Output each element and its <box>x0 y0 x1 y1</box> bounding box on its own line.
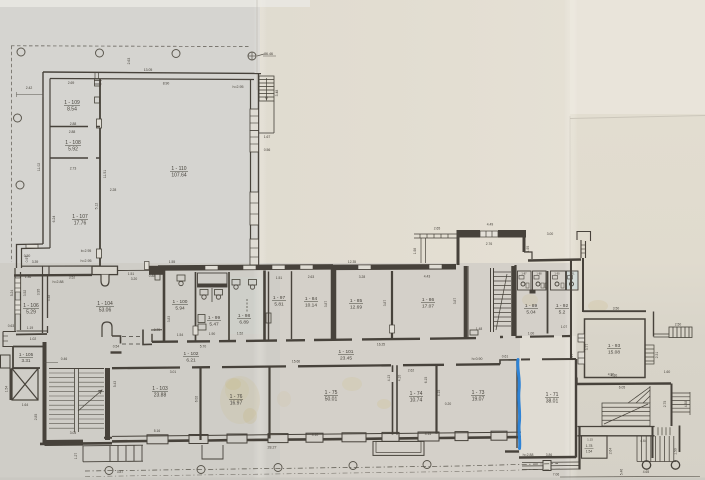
svg-text:6.89: 6.89 <box>239 320 249 326</box>
svg-text:17.76: 17.76 <box>74 221 87 227</box>
svg-text:1-88: 1-88 <box>536 272 542 276</box>
svg-text:3.95: 3.95 <box>37 289 41 296</box>
svg-text:5.47: 5.47 <box>209 322 219 328</box>
svg-text:1.90: 1.90 <box>209 332 216 336</box>
svg-text:5.43: 5.43 <box>113 381 117 388</box>
svg-text:1 - 105: 1 - 105 <box>19 352 34 357</box>
svg-text:1.48: 1.48 <box>476 327 483 331</box>
svg-text:1.67: 1.67 <box>264 135 271 139</box>
svg-text:8.90: 8.90 <box>163 82 170 86</box>
svg-text:2.97: 2.97 <box>570 354 574 361</box>
svg-text:16.25: 16.25 <box>377 343 385 347</box>
svg-text:0.97: 0.97 <box>25 256 29 263</box>
svg-text:10.74: 10.74 <box>410 398 423 404</box>
svg-text:1.19: 1.19 <box>27 326 34 330</box>
svg-text:1.54: 1.54 <box>586 450 593 454</box>
svg-text:1.07: 1.07 <box>561 325 568 329</box>
svg-text:1 - 108: 1 - 108 <box>65 140 81 146</box>
svg-text:13.05: 13.05 <box>144 68 153 72</box>
svg-text:1 - 110: 1 - 110 <box>171 166 186 172</box>
svg-text:28.27: 28.27 <box>268 446 277 450</box>
svg-text:12.35: 12.35 <box>348 260 356 264</box>
svg-text:3.00: 3.00 <box>547 232 554 236</box>
svg-text:0.46: 0.46 <box>61 357 68 361</box>
svg-text:5.46: 5.46 <box>620 469 624 476</box>
svg-text:1 - 101: 1 - 101 <box>339 349 354 355</box>
svg-text:1 - 103: 1 - 103 <box>152 386 168 392</box>
svg-text:1.27: 1.27 <box>74 453 78 460</box>
svg-text:2.76: 2.76 <box>486 242 493 246</box>
svg-text:1.15: 1.15 <box>587 438 593 442</box>
svg-text:4.30: 4.30 <box>611 374 618 378</box>
svg-text:3.77: 3.77 <box>585 344 589 351</box>
svg-text:1.60: 1.60 <box>664 370 671 374</box>
svg-text:5.92: 5.92 <box>68 147 78 153</box>
svg-text:3.52: 3.52 <box>23 290 27 297</box>
svg-text:3.31: 3.31 <box>22 358 31 363</box>
svg-text:2.73: 2.73 <box>70 167 77 171</box>
svg-text:7.06: 7.06 <box>553 473 560 477</box>
svg-text:3.87: 3.87 <box>324 301 328 308</box>
svg-text:4.13: 4.13 <box>387 375 391 382</box>
svg-text:3.52: 3.52 <box>69 276 76 280</box>
svg-text:17.07: 17.07 <box>422 304 434 310</box>
svg-text:1 - 73: 1 - 73 <box>472 390 485 396</box>
svg-text:86.46: 86.46 <box>264 52 273 56</box>
svg-text:3.87: 3.87 <box>117 470 124 474</box>
svg-text:4.10: 4.10 <box>312 433 319 437</box>
svg-text:1.55: 1.55 <box>169 260 176 264</box>
svg-text:1.52: 1.52 <box>237 332 244 336</box>
svg-text:2.65: 2.65 <box>434 227 441 231</box>
svg-text:0.54: 0.54 <box>113 345 120 349</box>
svg-text:3.48: 3.48 <box>275 90 279 97</box>
svg-text:0.70: 0.70 <box>154 328 161 332</box>
svg-text:23.45: 23.45 <box>340 356 352 362</box>
svg-text:0.56: 0.56 <box>264 148 271 152</box>
svg-text:4.43: 4.43 <box>424 275 431 279</box>
svg-text:1.51: 1.51 <box>276 276 283 280</box>
svg-text:1 - 98: 1 - 98 <box>238 313 251 319</box>
svg-text:1.64: 1.64 <box>22 403 29 407</box>
svg-text:2.62: 2.62 <box>408 369 415 373</box>
svg-text:10.14: 10.14 <box>305 303 317 309</box>
svg-text:1 - 74: 1 - 74 <box>410 391 423 397</box>
svg-text:0.88: 0.88 <box>149 274 156 278</box>
svg-text:1 - 71: 1 - 71 <box>546 392 559 398</box>
svg-text:5.16: 5.16 <box>154 429 161 433</box>
svg-text:1.98: 1.98 <box>413 248 417 255</box>
svg-text:5.29: 5.29 <box>26 310 36 316</box>
svg-text:1.51: 1.51 <box>128 272 135 276</box>
svg-text:5.2: 5.2 <box>559 310 566 316</box>
svg-text:38.01: 38.01 <box>546 399 559 405</box>
svg-text:2.50: 2.50 <box>675 323 682 327</box>
svg-text:b=2.95: b=2.95 <box>81 249 92 253</box>
svg-text:2.64: 2.64 <box>609 448 613 455</box>
svg-text:1.95: 1.95 <box>526 246 530 253</box>
svg-text:2.42: 2.42 <box>26 86 33 90</box>
svg-text:50.01: 50.01 <box>325 397 338 403</box>
svg-text:1 - 86: 1 - 86 <box>422 297 435 303</box>
svg-text:2.88: 2.88 <box>70 122 77 126</box>
svg-text:6.15: 6.15 <box>424 377 428 384</box>
svg-text:15.08: 15.08 <box>608 350 620 356</box>
svg-text:1.02: 1.02 <box>30 337 37 341</box>
svg-text:6.05: 6.05 <box>619 386 626 390</box>
svg-text:12.69: 12.69 <box>350 305 362 311</box>
svg-text:2.31: 2.31 <box>655 352 659 359</box>
svg-text:1-78: 1-78 <box>586 444 593 448</box>
svg-text:3.87: 3.87 <box>383 300 387 307</box>
svg-text:1 - 75: 1 - 75 <box>325 390 338 396</box>
svg-text:5.70: 5.70 <box>200 345 207 349</box>
svg-text:4.15: 4.15 <box>437 390 441 397</box>
svg-text:1 - 99: 1 - 99 <box>208 315 221 321</box>
svg-text:4.10: 4.10 <box>398 375 402 382</box>
svg-text:h=2.95: h=2.95 <box>80 259 91 263</box>
svg-text:3.86: 3.86 <box>546 453 553 457</box>
svg-text:3.05: 3.05 <box>70 431 77 435</box>
svg-text:6.24: 6.24 <box>52 216 56 223</box>
svg-text:1-87: 1-87 <box>521 272 527 276</box>
svg-text:4.15: 4.15 <box>425 432 432 436</box>
svg-text:2.85: 2.85 <box>34 414 38 421</box>
svg-text:4.65: 4.65 <box>643 470 650 474</box>
svg-text:4.88: 4.88 <box>684 401 688 408</box>
svg-text:6.02: 6.02 <box>195 396 199 403</box>
svg-text:1 - 106: 1 - 106 <box>23 303 39 309</box>
svg-text:5.94: 5.94 <box>175 306 185 312</box>
svg-text:1 - 85: 1 - 85 <box>350 298 363 304</box>
svg-text:1.36: 1.36 <box>25 275 32 279</box>
svg-text:3.01: 3.01 <box>170 370 177 374</box>
svg-text:1.54: 1.54 <box>177 333 184 337</box>
svg-text:5.04: 5.04 <box>526 310 536 316</box>
svg-text:1 - 102: 1 - 102 <box>184 351 199 357</box>
svg-text:3.39: 3.39 <box>32 260 39 264</box>
svg-text:1 - 107: 1 - 107 <box>72 214 88 220</box>
svg-text:107.64: 107.64 <box>171 173 187 179</box>
svg-text:19.07: 19.07 <box>472 397 485 403</box>
svg-text:0.20: 0.20 <box>445 402 452 406</box>
svg-text:3.48: 3.48 <box>47 295 51 302</box>
svg-text:3.83: 3.83 <box>167 316 171 323</box>
svg-text:5.24: 5.24 <box>10 290 14 297</box>
svg-text:h=0.90: h=0.90 <box>472 357 483 361</box>
svg-text:1 - 84: 1 - 84 <box>305 296 318 302</box>
svg-text:1 - 100: 1 - 100 <box>173 299 188 305</box>
svg-text:6.21: 6.21 <box>186 358 196 364</box>
svg-text:5.12: 5.12 <box>95 203 99 210</box>
svg-text:3.20: 3.20 <box>131 277 138 281</box>
svg-text:1 - 76: 1 - 76 <box>230 394 243 400</box>
svg-text:0.63: 0.63 <box>8 324 15 328</box>
svg-text:3.28: 3.28 <box>359 275 366 279</box>
svg-text:23.88: 23.88 <box>154 393 167 399</box>
svg-text:1 - 104: 1 - 104 <box>97 301 113 307</box>
svg-text:2.75: 2.75 <box>663 401 667 408</box>
svg-text:53.06: 53.06 <box>99 308 112 314</box>
svg-text:11.02: 11.02 <box>37 163 41 171</box>
svg-text:h=2.88: h=2.88 <box>52 280 63 284</box>
svg-text:3.87: 3.87 <box>453 298 457 305</box>
svg-text:1 - 109: 1 - 109 <box>64 100 80 106</box>
svg-text:1.54: 1.54 <box>5 386 9 393</box>
svg-text:1 - 89: 1 - 89 <box>525 303 538 309</box>
svg-text:8.54: 8.54 <box>67 107 77 113</box>
svg-text:2.88: 2.88 <box>69 130 76 134</box>
svg-text:2.63: 2.63 <box>308 275 315 279</box>
svg-text:h=2.95: h=2.95 <box>232 85 243 89</box>
svg-text:2.69: 2.69 <box>68 81 75 85</box>
svg-text:16.97: 16.97 <box>230 401 243 407</box>
svg-text:h=2.88: h=2.88 <box>523 453 534 457</box>
svg-text:4.64: 4.64 <box>640 439 647 443</box>
svg-text:5.81: 5.81 <box>274 302 284 308</box>
svg-text:1.50: 1.50 <box>674 448 678 455</box>
svg-text:2.63: 2.63 <box>127 58 131 65</box>
svg-text:11.51: 11.51 <box>103 170 107 178</box>
svg-text:1 - 92: 1 - 92 <box>556 303 569 309</box>
svg-text:3.50: 3.50 <box>613 307 620 311</box>
svg-text:1-90: 1-90 <box>554 272 560 276</box>
svg-text:1.00: 1.00 <box>528 332 535 336</box>
svg-text:1 - 93: 1 - 93 <box>608 343 621 349</box>
svg-text:4.49: 4.49 <box>487 223 494 227</box>
svg-text:2.28: 2.28 <box>110 188 117 192</box>
svg-text:0.61: 0.61 <box>502 355 509 359</box>
svg-text:1 - 97: 1 - 97 <box>273 295 286 301</box>
svg-text:15.66: 15.66 <box>292 360 300 364</box>
